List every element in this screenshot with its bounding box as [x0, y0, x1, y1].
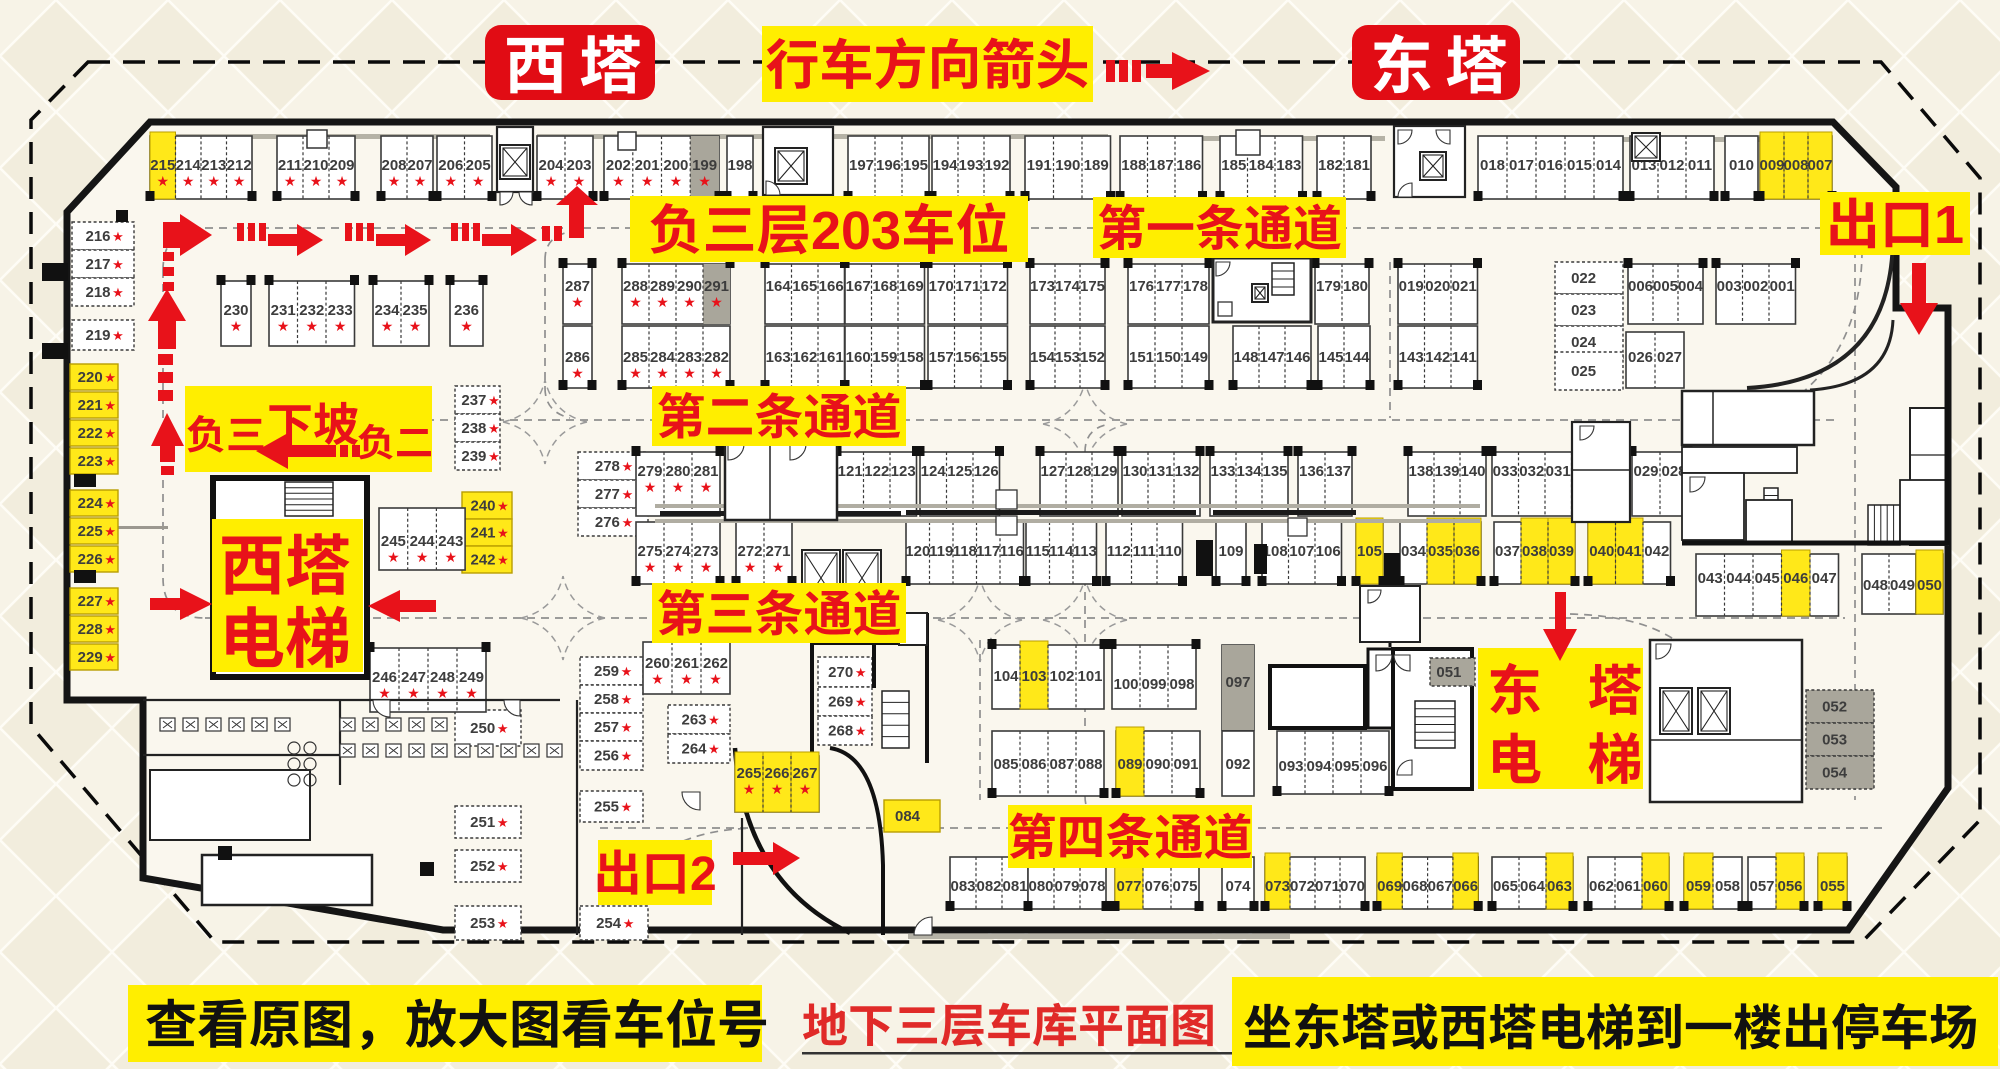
- svg-text:003: 003: [1717, 278, 1742, 295]
- svg-text:183: 183: [1276, 157, 1301, 174]
- svg-text:040: 040: [1589, 543, 1614, 560]
- svg-text:133: 133: [1210, 463, 1235, 480]
- svg-text:102: 102: [1049, 668, 1074, 685]
- svg-text:050: 050: [1917, 577, 1942, 594]
- svg-text:288: 288: [623, 278, 648, 295]
- svg-text:188: 188: [1121, 157, 1146, 174]
- svg-text:★: ★: [104, 496, 116, 511]
- svg-text:272: 272: [737, 543, 762, 560]
- svg-text:238: 238: [461, 420, 486, 437]
- svg-text:125: 125: [947, 463, 972, 480]
- svg-text:032: 032: [1519, 463, 1544, 480]
- svg-text:198: 198: [727, 157, 752, 174]
- svg-text:063: 063: [1547, 878, 1572, 895]
- svg-text:049: 049: [1890, 577, 1915, 594]
- svg-text:127: 127: [1040, 463, 1065, 480]
- svg-text:★: ★: [407, 685, 420, 701]
- svg-text:144: 144: [1344, 349, 1370, 366]
- svg-text:254: 254: [596, 915, 622, 932]
- svg-text:107: 107: [1289, 543, 1314, 560]
- svg-text:★: ★: [277, 318, 290, 334]
- svg-text:250: 250: [470, 720, 495, 737]
- svg-text:034: 034: [1401, 543, 1427, 560]
- svg-text:226: 226: [78, 551, 103, 568]
- svg-text:★: ★: [497, 526, 509, 541]
- svg-text:172: 172: [982, 278, 1007, 295]
- svg-text:002: 002: [1743, 278, 1768, 295]
- svg-text:284: 284: [650, 349, 676, 366]
- svg-text:270: 270: [828, 664, 853, 681]
- svg-text:212: 212: [227, 157, 252, 174]
- svg-text:200: 200: [663, 157, 688, 174]
- svg-text:114: 114: [1049, 543, 1074, 560]
- svg-text:185: 185: [1221, 157, 1246, 174]
- svg-text:252: 252: [470, 858, 495, 875]
- svg-text:072: 072: [1290, 878, 1315, 895]
- svg-text:★: ★: [310, 173, 323, 189]
- svg-text:275: 275: [637, 543, 662, 560]
- svg-text:055: 055: [1820, 878, 1845, 895]
- svg-text:★: ★: [112, 285, 124, 300]
- svg-text:017: 017: [1509, 157, 1534, 174]
- svg-text:★: ★: [710, 294, 723, 310]
- svg-text:★: ★: [387, 549, 400, 565]
- svg-text:★: ★: [683, 294, 696, 310]
- svg-text:★: ★: [465, 685, 478, 701]
- svg-text:220: 220: [78, 369, 103, 386]
- svg-text:099: 099: [1141, 676, 1166, 693]
- svg-text:210: 210: [303, 157, 328, 174]
- svg-text:★: ★: [855, 665, 867, 680]
- svg-text:215: 215: [150, 157, 175, 174]
- svg-text:060: 060: [1643, 878, 1668, 895]
- svg-text:131: 131: [1148, 463, 1173, 480]
- svg-text:065: 065: [1493, 878, 1518, 895]
- svg-text:119: 119: [929, 543, 953, 560]
- svg-text:191: 191: [1027, 157, 1052, 174]
- svg-text:091: 091: [1173, 756, 1198, 773]
- svg-text:165: 165: [792, 278, 817, 295]
- svg-text:219: 219: [85, 327, 110, 344]
- svg-text:206: 206: [438, 157, 463, 174]
- svg-text:★: ★: [414, 173, 427, 189]
- svg-text:229: 229: [78, 649, 103, 666]
- svg-text:109: 109: [1218, 543, 1243, 560]
- svg-text:240: 240: [470, 498, 495, 515]
- svg-text:122: 122: [864, 463, 889, 480]
- svg-text:086: 086: [1021, 756, 1046, 773]
- svg-text:120: 120: [905, 543, 930, 560]
- svg-text:069: 069: [1377, 878, 1402, 895]
- svg-text:216: 216: [85, 228, 110, 245]
- svg-text:068: 068: [1402, 878, 1427, 895]
- svg-text:041: 041: [1617, 543, 1642, 560]
- svg-text:286: 286: [565, 349, 590, 366]
- svg-text:021: 021: [1452, 278, 1477, 295]
- svg-text:★: ★: [621, 800, 633, 815]
- svg-text:051: 051: [1436, 664, 1461, 681]
- svg-text:245: 245: [381, 533, 406, 550]
- svg-text:035: 035: [1428, 543, 1453, 560]
- svg-text:094: 094: [1306, 758, 1332, 775]
- svg-text:★: ★: [683, 365, 696, 381]
- svg-text:178: 178: [1183, 278, 1208, 295]
- svg-text:061: 061: [1616, 878, 1641, 895]
- svg-text:142: 142: [1425, 349, 1450, 366]
- svg-text:180: 180: [1343, 278, 1368, 295]
- svg-text:★: ★: [621, 692, 633, 707]
- svg-text:★: ★: [623, 916, 635, 931]
- svg-text:194: 194: [932, 157, 958, 174]
- svg-text:★: ★: [855, 695, 867, 710]
- svg-text:036: 036: [1455, 543, 1480, 560]
- svg-text:079: 079: [1054, 878, 1079, 895]
- svg-text:053: 053: [1822, 732, 1847, 749]
- svg-text:273: 273: [693, 543, 718, 560]
- svg-text:239: 239: [461, 448, 486, 465]
- svg-text:150: 150: [1156, 349, 1181, 366]
- svg-text:★: ★: [112, 229, 124, 244]
- svg-text:★: ★: [488, 393, 500, 408]
- svg-text:163: 163: [766, 349, 791, 366]
- svg-text:066: 066: [1453, 878, 1478, 895]
- svg-text:153: 153: [1055, 349, 1080, 366]
- svg-text:045: 045: [1755, 570, 1780, 587]
- svg-text:134: 134: [1236, 463, 1262, 480]
- svg-text:205: 205: [466, 157, 491, 174]
- svg-text:★: ★: [708, 713, 720, 728]
- svg-text:018: 018: [1480, 157, 1505, 174]
- svg-text:244: 244: [410, 533, 436, 550]
- svg-text:170: 170: [929, 278, 954, 295]
- svg-text:174: 174: [1055, 278, 1081, 295]
- svg-text:124: 124: [921, 463, 947, 480]
- svg-text:258: 258: [594, 691, 619, 708]
- svg-text:098: 098: [1169, 676, 1194, 693]
- svg-text:064: 064: [1520, 878, 1546, 895]
- svg-text:3: 3: [871, 201, 901, 261]
- svg-text:132: 132: [1174, 463, 1199, 480]
- svg-text:135: 135: [1262, 463, 1287, 480]
- svg-text:237: 237: [461, 392, 486, 409]
- svg-text:044: 044: [1726, 570, 1752, 587]
- svg-text:★: ★: [571, 294, 584, 310]
- svg-text:248: 248: [430, 669, 455, 686]
- svg-text:280: 280: [665, 463, 690, 480]
- svg-text:276: 276: [595, 514, 620, 531]
- svg-text:118: 118: [953, 543, 977, 560]
- svg-text:140: 140: [1460, 463, 1485, 480]
- svg-text:★: ★: [409, 318, 422, 334]
- svg-text:★: ★: [157, 173, 170, 189]
- svg-text:255: 255: [594, 799, 619, 816]
- svg-text:204: 204: [538, 157, 564, 174]
- svg-text:268: 268: [828, 723, 853, 740]
- svg-text:★: ★: [460, 318, 473, 334]
- svg-text:285: 285: [623, 349, 648, 366]
- svg-text:010: 010: [1729, 157, 1754, 174]
- svg-text:★: ★: [641, 173, 654, 189]
- svg-text:★: ★: [743, 781, 756, 797]
- svg-text:★: ★: [700, 479, 713, 495]
- svg-text:143: 143: [1399, 349, 1424, 366]
- svg-text:008: 008: [1783, 157, 1808, 174]
- svg-text:★: ★: [104, 650, 116, 665]
- svg-text:279: 279: [637, 463, 662, 480]
- svg-text:291: 291: [704, 278, 729, 295]
- svg-text:222: 222: [78, 425, 103, 442]
- svg-text:016: 016: [1538, 157, 1563, 174]
- svg-text:★: ★: [497, 859, 509, 874]
- svg-text:078: 078: [1080, 878, 1105, 895]
- svg-text:269: 269: [828, 694, 853, 711]
- svg-text:137: 137: [1326, 463, 1351, 480]
- svg-text:267: 267: [792, 765, 817, 782]
- svg-text:014: 014: [1596, 157, 1622, 174]
- svg-text:196: 196: [876, 157, 901, 174]
- svg-text:195: 195: [903, 157, 928, 174]
- svg-text:★: ★: [700, 559, 713, 575]
- svg-text:236: 236: [454, 302, 479, 319]
- svg-text:264: 264: [681, 741, 707, 758]
- svg-text:077: 077: [1116, 878, 1141, 895]
- svg-text:004: 004: [1678, 278, 1704, 295]
- svg-text:★: ★: [672, 559, 685, 575]
- svg-text:115: 115: [1026, 543, 1050, 560]
- svg-text:177: 177: [1156, 278, 1181, 295]
- svg-text:167: 167: [846, 278, 871, 295]
- svg-text:145: 145: [1318, 349, 1343, 366]
- svg-text:171: 171: [955, 278, 980, 295]
- svg-text:263: 263: [681, 712, 706, 729]
- svg-text:★: ★: [208, 173, 221, 189]
- svg-text:043: 043: [1698, 570, 1723, 587]
- svg-text:161: 161: [819, 349, 844, 366]
- svg-text:093: 093: [1278, 758, 1303, 775]
- svg-text:290: 290: [677, 278, 702, 295]
- svg-text:★: ★: [772, 559, 785, 575]
- svg-text:★: ★: [622, 459, 634, 474]
- svg-text:★: ★: [104, 454, 116, 469]
- svg-text:182: 182: [1318, 157, 1343, 174]
- svg-text:★: ★: [622, 487, 634, 502]
- svg-text:209: 209: [329, 157, 354, 174]
- svg-text:★: ★: [545, 173, 558, 189]
- svg-text:★: ★: [672, 479, 685, 495]
- svg-text:168: 168: [872, 278, 897, 295]
- svg-text:022: 022: [1571, 270, 1596, 287]
- svg-text:★: ★: [629, 294, 642, 310]
- svg-text:235: 235: [402, 302, 427, 319]
- svg-text:104: 104: [993, 668, 1019, 685]
- svg-text:139: 139: [1434, 463, 1459, 480]
- svg-text:★: ★: [644, 479, 657, 495]
- svg-text:★: ★: [612, 173, 625, 189]
- svg-text:★: ★: [233, 173, 246, 189]
- svg-text:287: 287: [565, 278, 590, 295]
- svg-text:073: 073: [1265, 878, 1290, 895]
- svg-text:112: 112: [1107, 543, 1131, 560]
- svg-text:033: 033: [1493, 463, 1518, 480]
- svg-text:005: 005: [1653, 278, 1678, 295]
- svg-text:156: 156: [955, 349, 980, 366]
- svg-text:149: 149: [1183, 349, 1208, 366]
- svg-text:225: 225: [78, 523, 103, 540]
- svg-text:★: ★: [744, 559, 757, 575]
- svg-text:227: 227: [78, 593, 103, 610]
- svg-text:207: 207: [407, 157, 432, 174]
- svg-text:096: 096: [1362, 758, 1387, 775]
- svg-text:138: 138: [1408, 463, 1433, 480]
- svg-text:★: ★: [334, 318, 347, 334]
- svg-text:230: 230: [223, 302, 248, 319]
- svg-text:282: 282: [704, 349, 729, 366]
- svg-text:265: 265: [736, 765, 761, 782]
- svg-text:151: 151: [1129, 349, 1154, 366]
- svg-text:046: 046: [1783, 570, 1808, 587]
- svg-text:★: ★: [621, 749, 633, 764]
- svg-text:027: 027: [1657, 349, 1682, 366]
- svg-text:105: 105: [1357, 543, 1382, 560]
- svg-text:★: ★: [651, 671, 664, 687]
- svg-text:067: 067: [1428, 878, 1453, 895]
- svg-text:★: ★: [416, 549, 429, 565]
- svg-text:★: ★: [182, 173, 195, 189]
- svg-text:283: 283: [677, 349, 702, 366]
- svg-text:164: 164: [766, 278, 792, 295]
- svg-text:146: 146: [1285, 349, 1310, 366]
- svg-text:038: 038: [1522, 543, 1547, 560]
- svg-text:★: ★: [855, 724, 867, 739]
- svg-text:089: 089: [1117, 756, 1142, 773]
- svg-text:148: 148: [1233, 349, 1258, 366]
- svg-text:★: ★: [104, 552, 116, 567]
- svg-text:097: 097: [1225, 674, 1250, 691]
- svg-text:058: 058: [1715, 878, 1740, 895]
- svg-text:256: 256: [594, 748, 619, 765]
- svg-text:083: 083: [950, 878, 975, 895]
- svg-text:159: 159: [872, 349, 897, 366]
- svg-text:189: 189: [1084, 157, 1109, 174]
- svg-text:186: 186: [1176, 157, 1201, 174]
- svg-text:193: 193: [958, 157, 983, 174]
- svg-text:141: 141: [1452, 349, 1477, 366]
- svg-text:★: ★: [104, 370, 116, 385]
- svg-text:001: 001: [1770, 278, 1795, 295]
- svg-text:090: 090: [1145, 756, 1170, 773]
- svg-text:057: 057: [1749, 878, 1774, 895]
- svg-text:223: 223: [78, 453, 103, 470]
- svg-text:257: 257: [594, 719, 619, 736]
- svg-text:087: 087: [1049, 756, 1074, 773]
- svg-text:218: 218: [85, 284, 110, 301]
- svg-text:147: 147: [1259, 349, 1284, 366]
- svg-text:1: 1: [1934, 195, 1964, 255]
- svg-text:★: ★: [306, 318, 319, 334]
- svg-text:162: 162: [792, 349, 817, 366]
- svg-text:274: 274: [665, 543, 691, 560]
- svg-text:076: 076: [1144, 878, 1169, 895]
- svg-text:★: ★: [104, 594, 116, 609]
- svg-text:160: 160: [846, 349, 871, 366]
- svg-text:0: 0: [841, 201, 871, 261]
- svg-text:★: ★: [378, 685, 391, 701]
- svg-text:211: 211: [278, 157, 302, 174]
- svg-text:★: ★: [488, 421, 500, 436]
- svg-text:234: 234: [374, 302, 400, 319]
- svg-text:233: 233: [328, 302, 353, 319]
- svg-text:★: ★: [336, 173, 349, 189]
- svg-text:★: ★: [497, 553, 509, 568]
- svg-text:152: 152: [1080, 349, 1105, 366]
- svg-text:266: 266: [764, 765, 789, 782]
- svg-text:012: 012: [1659, 157, 1684, 174]
- svg-text:009: 009: [1759, 157, 1784, 174]
- svg-text:★: ★: [709, 671, 722, 687]
- svg-text:075: 075: [1172, 878, 1197, 895]
- svg-text:054: 054: [1822, 765, 1848, 782]
- svg-text:251: 251: [470, 814, 495, 831]
- svg-text:261: 261: [674, 655, 699, 672]
- svg-text:095: 095: [1334, 758, 1359, 775]
- svg-text:228: 228: [78, 621, 103, 638]
- svg-text:232: 232: [299, 302, 324, 319]
- svg-text:117: 117: [976, 543, 1000, 560]
- svg-text:★: ★: [445, 173, 458, 189]
- svg-text:088: 088: [1077, 756, 1102, 773]
- svg-text:★: ★: [497, 721, 509, 736]
- svg-text:★: ★: [571, 365, 584, 381]
- svg-text:★: ★: [436, 685, 449, 701]
- svg-text:281: 281: [693, 463, 718, 480]
- svg-text:278: 278: [595, 458, 620, 475]
- svg-text:111: 111: [1133, 543, 1156, 560]
- svg-text:015: 015: [1567, 157, 1592, 174]
- svg-text:039: 039: [1549, 543, 1574, 560]
- svg-text:★: ★: [112, 328, 124, 343]
- svg-text:129: 129: [1092, 463, 1117, 480]
- svg-text:084: 084: [895, 808, 921, 825]
- svg-text:031: 031: [1546, 463, 1571, 480]
- svg-text:★: ★: [670, 173, 683, 189]
- svg-text:103: 103: [1021, 668, 1046, 685]
- svg-text:082: 082: [976, 878, 1001, 895]
- svg-text:241: 241: [470, 525, 495, 542]
- svg-text:155: 155: [982, 349, 1007, 366]
- svg-text:158: 158: [899, 349, 924, 366]
- svg-text:★: ★: [573, 173, 586, 189]
- svg-text:184: 184: [1249, 157, 1275, 174]
- svg-text:★: ★: [771, 781, 784, 797]
- svg-text:★: ★: [104, 426, 116, 441]
- svg-text:059: 059: [1686, 878, 1711, 895]
- svg-text:116: 116: [1000, 543, 1024, 560]
- svg-text:★: ★: [497, 916, 509, 931]
- svg-text:197: 197: [849, 157, 874, 174]
- svg-text:243: 243: [438, 533, 463, 550]
- svg-text:037: 037: [1495, 543, 1520, 560]
- svg-text:074: 074: [1225, 878, 1251, 895]
- svg-text:192: 192: [984, 157, 1009, 174]
- svg-text:260: 260: [645, 655, 670, 672]
- svg-text:071: 071: [1315, 878, 1340, 895]
- svg-text:★: ★: [621, 720, 633, 735]
- svg-text:★: ★: [698, 173, 711, 189]
- svg-text:154: 154: [1030, 349, 1056, 366]
- svg-text:081: 081: [1002, 878, 1027, 895]
- svg-text:176: 176: [1129, 278, 1154, 295]
- svg-text:271: 271: [765, 543, 790, 560]
